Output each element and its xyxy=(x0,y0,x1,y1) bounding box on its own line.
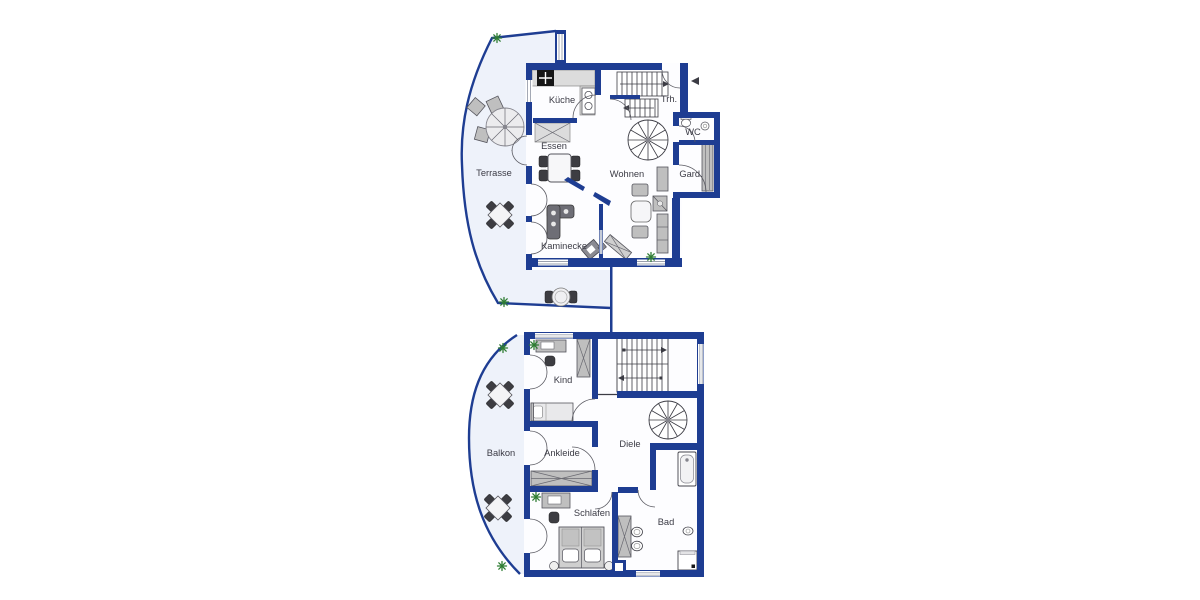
room-label-kueche: Küche xyxy=(549,95,575,105)
room-label-kaminecke: Kaminecke xyxy=(541,241,587,251)
plant-icon xyxy=(530,341,539,350)
kitchen-stove xyxy=(582,88,595,114)
spiral-staircase-upper xyxy=(628,120,668,160)
plant-icon xyxy=(499,344,508,353)
room-label-bad: Bad xyxy=(658,517,675,527)
floor-connector-line xyxy=(610,267,613,332)
room-label-trh: Trh. xyxy=(661,94,677,104)
coffee-table xyxy=(631,201,651,222)
room-label-kind: Kind xyxy=(554,375,573,385)
upper-floor-plan: Küche Trh. Essen Terrasse Wohnen WC Gard… xyxy=(462,30,720,308)
kind-bed xyxy=(531,403,573,421)
bath-toilet xyxy=(683,527,693,535)
sofa xyxy=(657,214,668,253)
plant-icon xyxy=(498,562,507,571)
entrance-arrow xyxy=(691,77,699,85)
lower-floor-plan: Kind Balkon Ankleide Diele Schlafen Bad xyxy=(469,332,704,577)
room-label-wc: WC xyxy=(685,127,701,137)
room-label-schlafen: Schlafen xyxy=(574,508,610,518)
shower xyxy=(678,551,697,570)
room-label-terrasse: Terrasse xyxy=(476,168,512,178)
plant-icon xyxy=(532,493,541,502)
room-label-wohnen: Wohnen xyxy=(610,169,644,179)
floorplan-canvas: Küche Trh. Essen Terrasse Wohnen WC Gard… xyxy=(0,0,1200,600)
room-label-balkon: Balkon xyxy=(487,448,515,458)
kind-wardrobe xyxy=(577,339,590,377)
wardrobe-gard xyxy=(702,143,713,191)
double-bed xyxy=(550,527,614,571)
floorplan-svg: Küche Trh. Essen Terrasse Wohnen WC Gard… xyxy=(0,0,1200,600)
plant-icon xyxy=(647,253,656,262)
staircase-straight-lower xyxy=(617,336,668,392)
dining-sideboard xyxy=(535,123,570,142)
room-label-gard: Gard. xyxy=(679,169,702,179)
bath-cabinet xyxy=(618,516,631,557)
tv-cabinet xyxy=(653,196,667,211)
shelf xyxy=(657,167,668,191)
armchair xyxy=(632,226,648,238)
wc-sink xyxy=(701,122,709,130)
room-label-ankleide: Ankleide xyxy=(544,448,580,458)
room-label-diele: Diele xyxy=(619,439,640,449)
plant-icon xyxy=(493,34,502,43)
bathtub xyxy=(678,452,696,486)
spiral-staircase-lower xyxy=(649,401,687,439)
armchair xyxy=(632,184,648,196)
ankleide-wardrobe xyxy=(531,471,592,486)
plant-icon xyxy=(500,298,509,307)
room-label-essen: Essen xyxy=(541,141,567,151)
